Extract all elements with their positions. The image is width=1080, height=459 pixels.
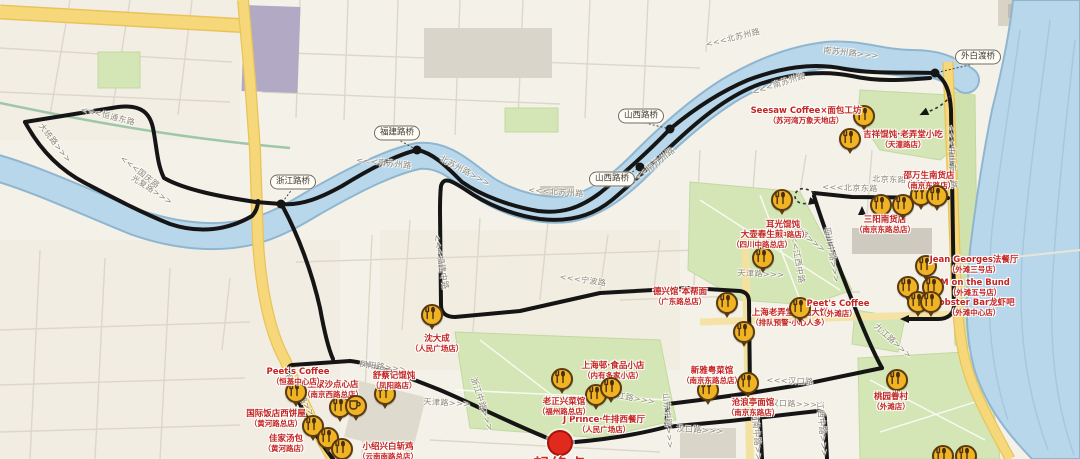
poi-pin-tail bbox=[847, 149, 853, 154]
bridge-crossing-dot bbox=[666, 125, 675, 134]
food-poi-marker[interactable] bbox=[932, 445, 954, 459]
food-poi-marker[interactable] bbox=[697, 379, 719, 401]
direction-arrow bbox=[858, 206, 866, 215]
poi-pin-tail bbox=[760, 268, 766, 273]
bridge-crossing-dot bbox=[931, 69, 940, 78]
route-spur-south bbox=[760, 420, 762, 459]
poi-pin-tail bbox=[878, 215, 884, 220]
food-poi-marker[interactable] bbox=[421, 304, 443, 326]
food-poi-marker[interactable] bbox=[600, 377, 622, 399]
poi-pin-tail bbox=[293, 402, 299, 407]
food-poi-marker[interactable] bbox=[733, 321, 755, 343]
poi-pin-tail bbox=[741, 342, 747, 347]
citywalk-food-map[interactable]: <<<恒通东路大统路>>>光复路>>><<<国庆路<<<南苏州路北苏州路>>><… bbox=[0, 0, 1080, 459]
huangpu-river bbox=[967, 0, 1080, 459]
poi-pin-tail bbox=[928, 312, 934, 317]
food-poi-marker[interactable] bbox=[716, 292, 738, 314]
food-poi-marker[interactable] bbox=[345, 395, 367, 417]
food-poi-marker[interactable] bbox=[551, 368, 573, 390]
poi-pin-tail bbox=[608, 398, 614, 403]
poi-pin-tail bbox=[724, 313, 730, 318]
poi-pin-tail bbox=[353, 416, 359, 421]
poi-pin-tail bbox=[559, 389, 565, 394]
map-canvas bbox=[0, 0, 1080, 459]
food-poi-marker[interactable] bbox=[926, 185, 948, 207]
poi-pin-tail bbox=[797, 318, 803, 323]
food-poi-marker[interactable] bbox=[886, 369, 908, 391]
food-poi-marker[interactable] bbox=[737, 372, 759, 394]
food-poi-marker[interactable] bbox=[374, 383, 396, 405]
food-poi-marker[interactable] bbox=[915, 255, 937, 277]
poi-pin-tail bbox=[918, 205, 924, 210]
poi-pin-tail bbox=[593, 405, 599, 410]
bridge-crossing-dot bbox=[636, 163, 645, 172]
food-poi-marker[interactable] bbox=[789, 297, 811, 319]
poi-pin-tail bbox=[337, 417, 343, 422]
bridge-crossing-dot bbox=[413, 146, 422, 155]
food-poi-marker[interactable] bbox=[839, 128, 861, 150]
food-poi-marker[interactable] bbox=[870, 194, 892, 216]
poi-pin-tail bbox=[861, 126, 867, 131]
poi-pin-tail bbox=[382, 404, 388, 409]
poi-pin-tail bbox=[900, 215, 906, 220]
poi-pin-tail bbox=[310, 436, 316, 441]
food-poi-marker[interactable] bbox=[285, 381, 307, 403]
food-poi-marker[interactable] bbox=[752, 247, 774, 269]
food-poi-marker[interactable] bbox=[771, 189, 793, 211]
poi-pin-tail bbox=[705, 400, 711, 405]
poi-pin-tail bbox=[429, 325, 435, 330]
food-poi-marker[interactable] bbox=[853, 105, 875, 127]
food-poi-marker[interactable] bbox=[955, 445, 977, 459]
poi-pin-tail bbox=[934, 206, 940, 211]
poi-pin-tail bbox=[779, 210, 785, 215]
start-point-label: 起终点 bbox=[533, 451, 587, 459]
food-poi-marker[interactable] bbox=[331, 438, 353, 459]
route-step bbox=[666, 404, 668, 427]
food-poi-marker[interactable] bbox=[920, 291, 942, 313]
bridge-crossing-dot bbox=[277, 200, 286, 209]
poi-pin-tail bbox=[745, 393, 751, 398]
poi-pin-tail bbox=[894, 390, 900, 395]
